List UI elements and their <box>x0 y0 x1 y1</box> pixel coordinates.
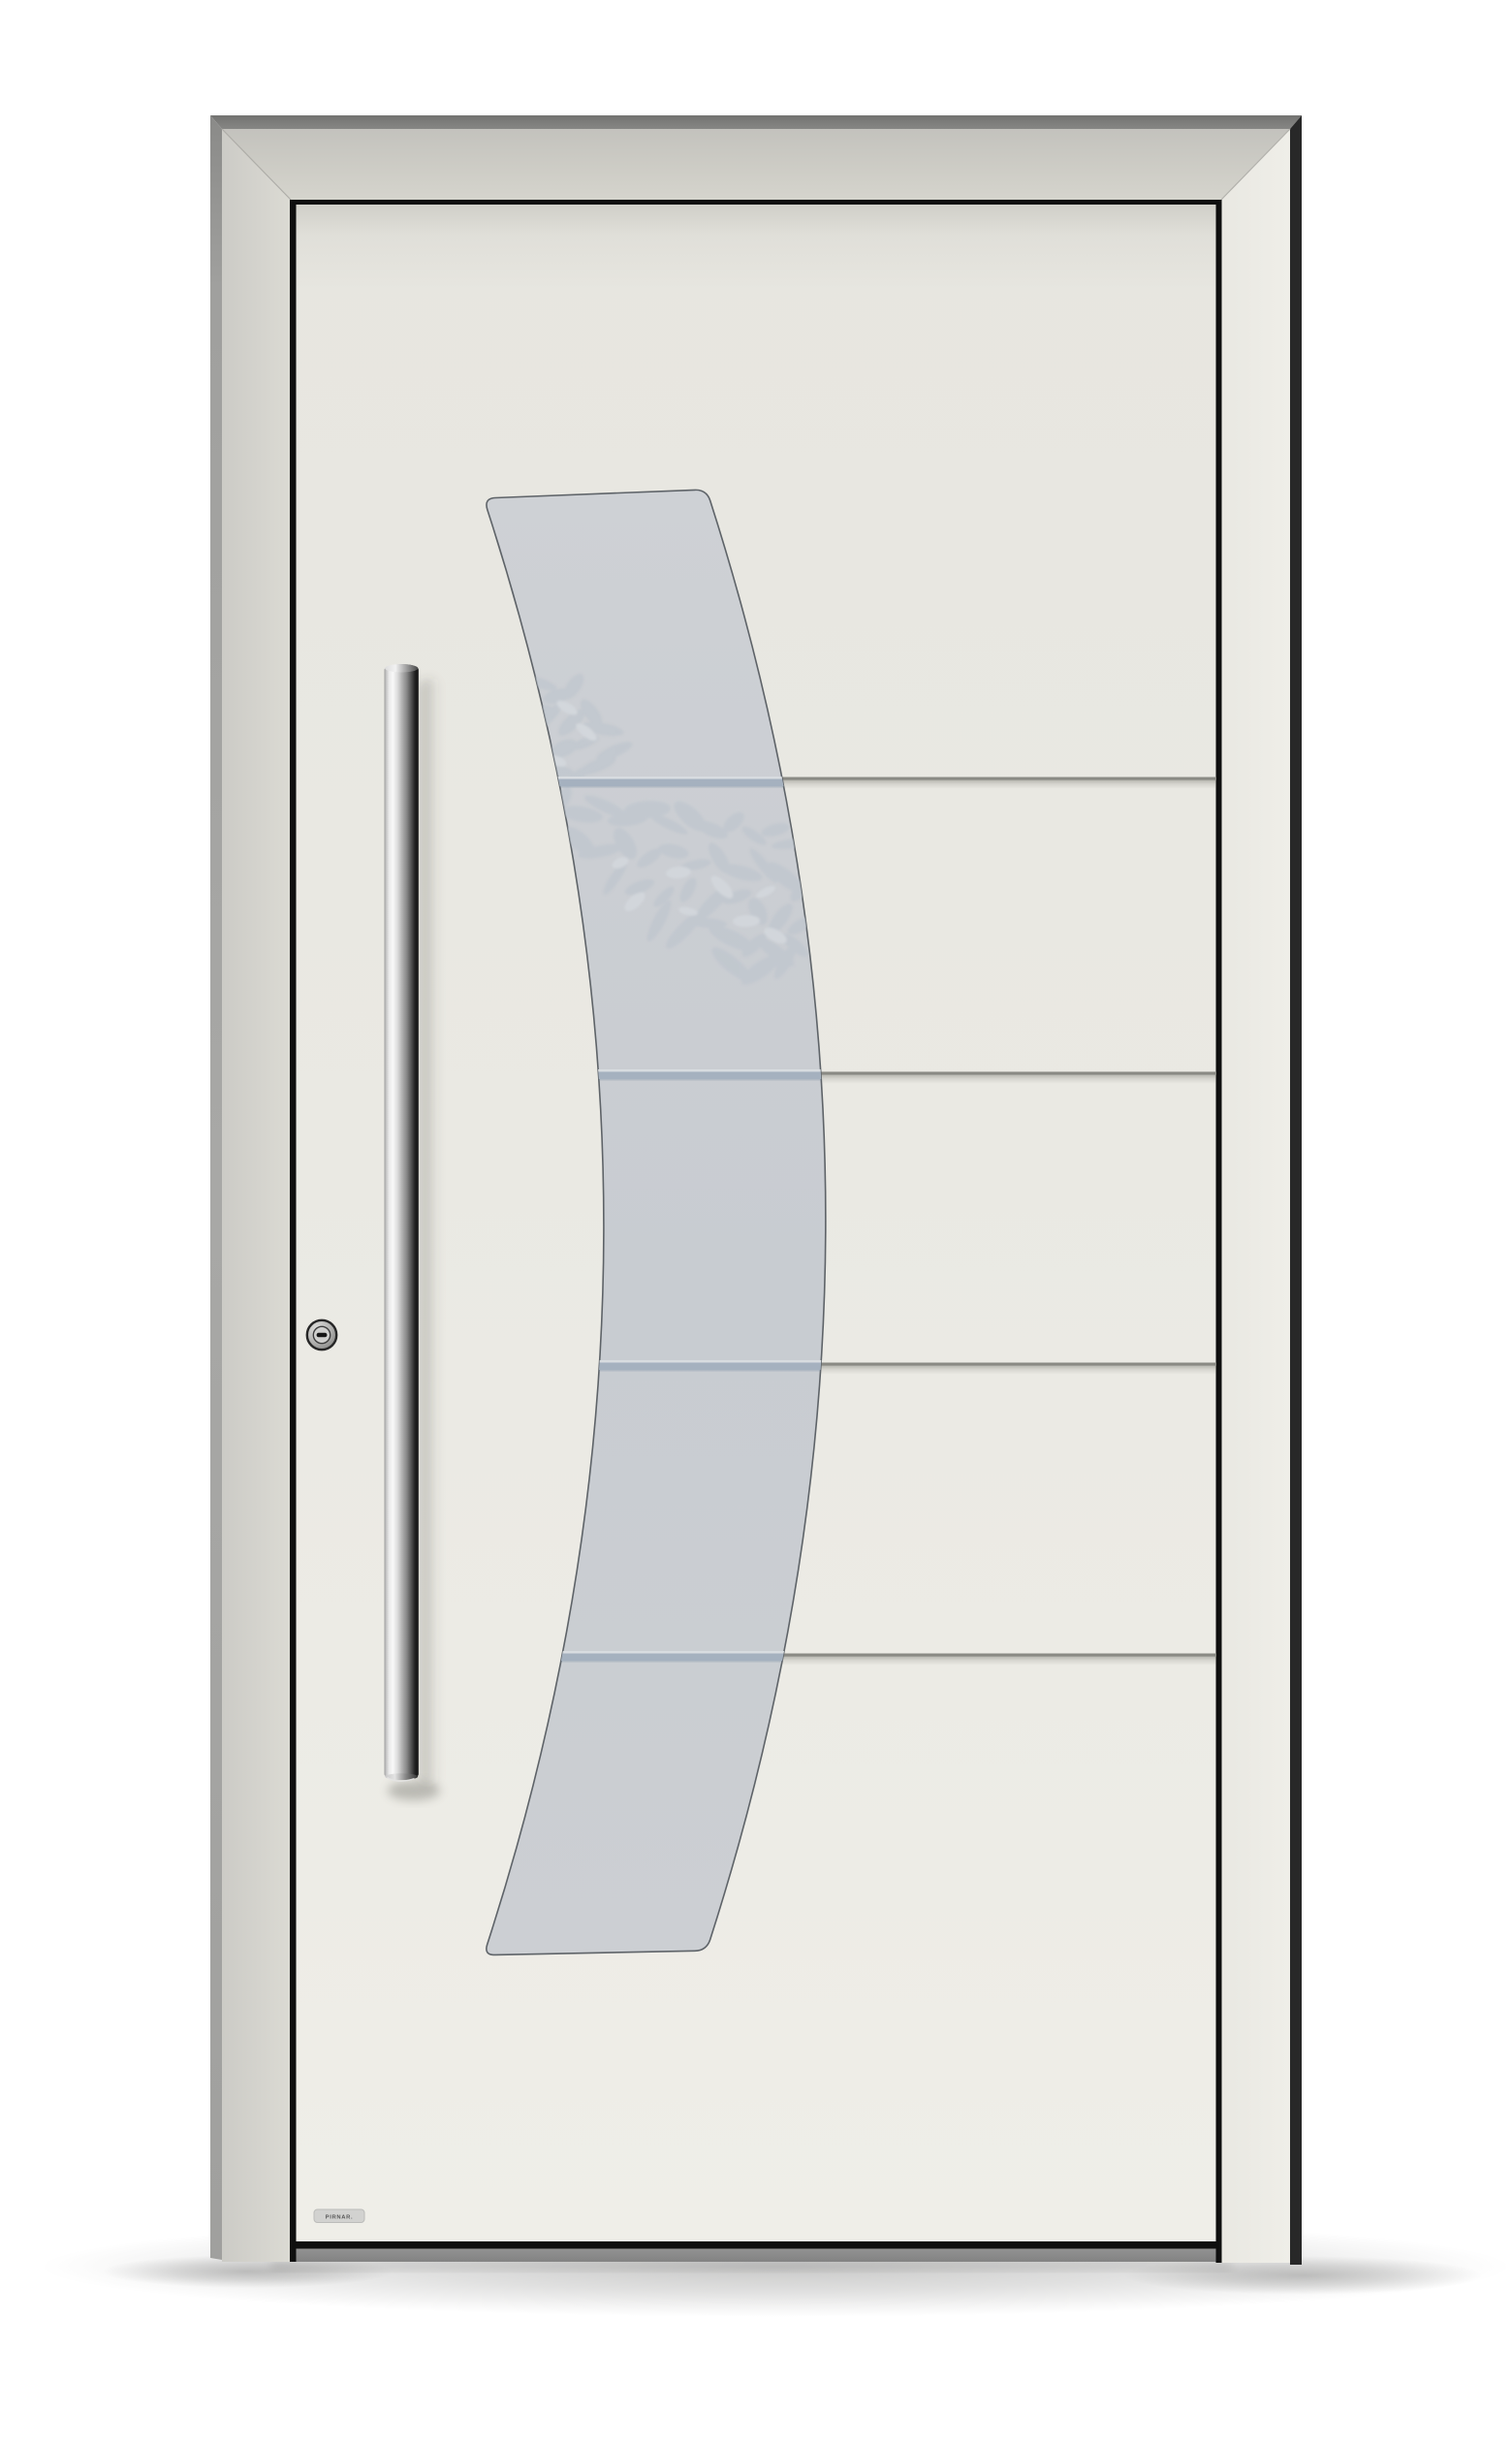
svg-text:PIRNAR.: PIRNAR. <box>326 2214 354 2220</box>
